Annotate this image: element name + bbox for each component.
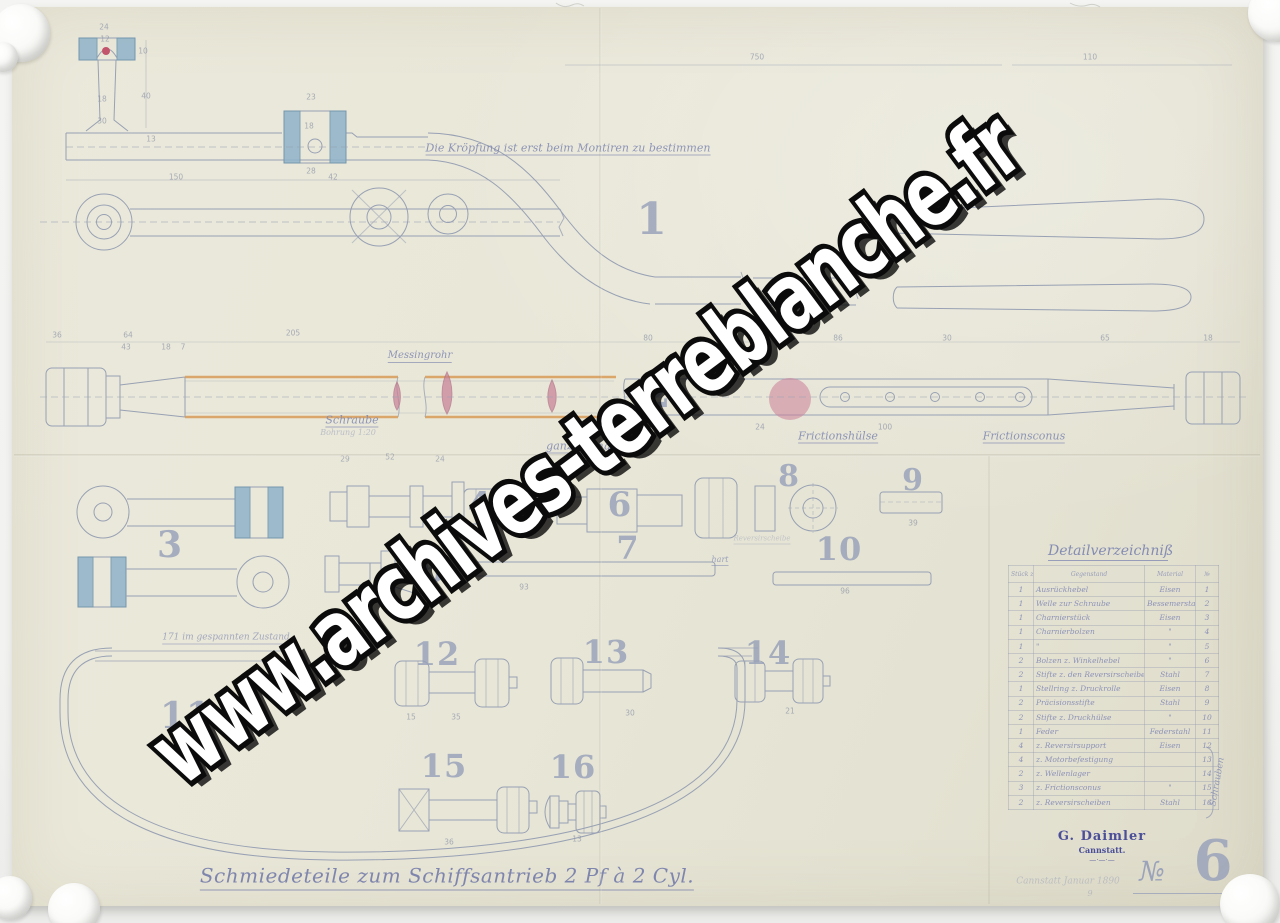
cell-material: Federstahl (1145, 724, 1196, 738)
table-row: 2 Bolzen z. Winkelhebel " 6 (1009, 653, 1219, 667)
cell-qty: 1 (1009, 625, 1034, 639)
cell-qty: 2 (1009, 710, 1034, 724)
parts-4-to-10 (325, 478, 942, 595)
col-header-item: Gegenstand (1034, 566, 1145, 583)
cell-number: 13 (1196, 753, 1219, 767)
table-row: 1 Ausrückhebel Eisen 1 (1009, 583, 1219, 597)
cell-number: 8 (1196, 682, 1219, 696)
cell-item: " (1034, 639, 1145, 653)
cell-material: Stahl (1145, 696, 1196, 710)
table-row: 3 z. Frictionsconus " 15 (1009, 781, 1219, 795)
table-row: 1 Feder Federstahl 11 (1009, 724, 1219, 738)
cell-qty: 4 (1009, 753, 1034, 767)
table-row: 1 Charnierbolzen " 4 (1009, 625, 1219, 639)
cell-qty: 1 (1009, 682, 1034, 696)
cell-material: " (1145, 710, 1196, 724)
col-header-number: № (1196, 566, 1219, 583)
table-row: 1 " " 5 (1009, 639, 1219, 653)
cell-number: 16 (1196, 795, 1219, 809)
cell-qty: 2 (1009, 653, 1034, 667)
cell-material: Stahl (1145, 668, 1196, 682)
cell-number: 2 (1196, 597, 1219, 611)
part1-lever (40, 38, 1232, 311)
parts-12-to-16-bolts (395, 658, 830, 833)
cell-number: 3 (1196, 611, 1219, 625)
cell-material: " (1145, 653, 1196, 667)
parts-table-title: Detailverzeichniß (1048, 543, 1168, 561)
cell-material: Bessemerstahl (1145, 597, 1196, 611)
cell-material: " (1145, 781, 1196, 795)
cell-qty: 1 (1009, 611, 1034, 625)
cell-number: 6 (1196, 653, 1219, 667)
cell-item: Charnierstück (1034, 611, 1145, 625)
parts-list: Stück zahl Gegenstand Material № 1 Ausrü… (1008, 565, 1219, 810)
cell-number: 1 (1196, 583, 1219, 597)
cell-material (1145, 753, 1196, 767)
table-row: 2 z. Wellenlager 14 (1009, 767, 1219, 781)
cell-qty: 1 (1009, 724, 1034, 738)
scanned-drawing-stage: 12345678910111213141516 2412101830401315… (0, 0, 1280, 923)
cell-item: Feder (1034, 724, 1145, 738)
cell-material: " (1145, 625, 1196, 639)
cell-material (1145, 767, 1196, 781)
cell-item: z. Motorbefestigung (1034, 753, 1145, 767)
cell-qty: 3 (1009, 781, 1034, 795)
sheet-title: Schmiedeteile zum Schiffsantrieb 2 Pf à … (200, 864, 694, 891)
cell-number: 5 (1196, 639, 1219, 653)
table-row: 1 Welle zur Schraube Bessemerstahl 2 (1009, 597, 1219, 611)
table-row: 1 Charnierstück Eisen 3 (1009, 611, 1219, 625)
cell-number: 11 (1196, 724, 1219, 738)
cell-qty: 2 (1009, 668, 1034, 682)
cell-number: 10 (1196, 710, 1219, 724)
cell-number: 9 (1196, 696, 1219, 710)
cell-material: " (1145, 639, 1196, 653)
table-row: 2 Stifte z. den Reversirscheiben Stahl 7 (1009, 668, 1219, 682)
col-header-material: Material (1145, 566, 1196, 583)
stamp-city: Cannstatt. (1046, 845, 1158, 855)
cell-item: z. Wellenlager (1034, 767, 1145, 781)
cell-qty: 2 (1009, 795, 1034, 809)
cell-qty: 1 (1009, 583, 1034, 597)
part11-spring (60, 648, 758, 860)
cell-material: Eisen (1145, 583, 1196, 597)
cell-qty: 2 (1009, 767, 1034, 781)
cell-item: Stifte z. den Reversirscheiben (1034, 668, 1145, 682)
cell-material: Stahl (1145, 795, 1196, 809)
col-header-qty: Stück zahl (1009, 566, 1034, 583)
cell-qty: 1 (1009, 597, 1034, 611)
cell-number: 15 (1196, 781, 1219, 795)
cell-item: z. Reversirsupport (1034, 739, 1145, 753)
sheet-number-sign: № (1139, 857, 1165, 888)
cell-material: Eisen (1145, 682, 1196, 696)
cell-item: Welle zur Schraube (1034, 597, 1145, 611)
cell-qty: 2 (1009, 696, 1034, 710)
cell-item: Stellring z. Druckrolle (1034, 682, 1145, 696)
cell-item: z. Frictionsconus (1034, 781, 1145, 795)
cell-item: z. Reversirscheiben (1034, 795, 1145, 809)
cell-number: 4 (1196, 625, 1219, 639)
cell-qty: 1 (1009, 639, 1034, 653)
cell-number: 7 (1196, 668, 1219, 682)
cell-item: Stifte z. Druckhülse (1034, 710, 1145, 724)
part2-shaft (40, 342, 1250, 426)
stamp-name: G. Daimler (1046, 829, 1158, 844)
cell-number: 12 (1196, 739, 1219, 753)
cell-material: Eisen (1145, 611, 1196, 625)
cell-qty: 4 (1009, 739, 1034, 753)
cell-item: Präcisionsstifte (1034, 696, 1145, 710)
table-row: 2 Stifte z. Druckhülse " 10 (1009, 710, 1219, 724)
parts-table: Detailverzeichniß Stück zahl Gegenstand … (1008, 543, 1208, 810)
table-row: 2 z. Reversirscheiben Stahl 16 (1009, 795, 1219, 809)
cell-item: Bolzen z. Winkelhebel (1034, 653, 1145, 667)
table-row: 1 Stellring z. Druckrolle Eisen 8 (1009, 682, 1219, 696)
table-row: 4 z. Motorbefestigung 13 (1009, 753, 1219, 767)
table-row: 2 Präcisionsstifte Stahl 9 (1009, 696, 1219, 710)
cell-item: Ausrückhebel (1034, 583, 1145, 597)
cell-item: Charnierbolzen (1034, 625, 1145, 639)
cell-number: 14 (1196, 767, 1219, 781)
table-row: 4 z. Reversirsupport Eisen 12 (1009, 739, 1219, 753)
part3-arms (77, 486, 289, 608)
cell-material: Eisen (1145, 739, 1196, 753)
